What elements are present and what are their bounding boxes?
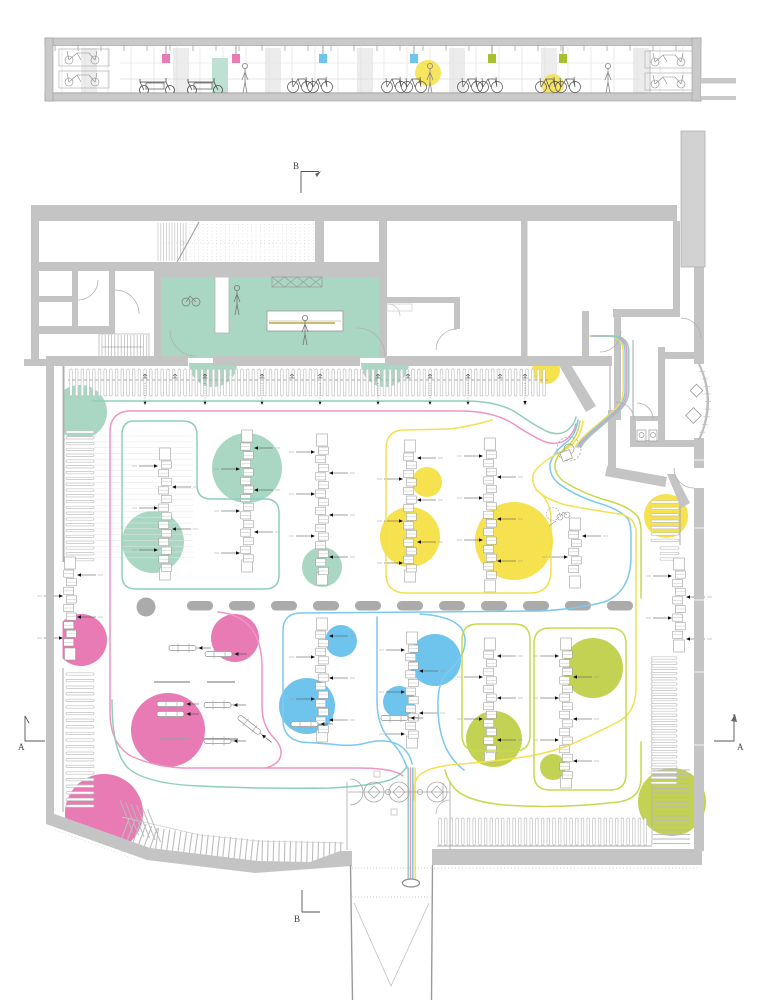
svg-text:A: A xyxy=(18,742,25,752)
svg-text:B: B xyxy=(294,914,300,924)
svg-text:A: A xyxy=(737,742,744,752)
svg-text:B: B xyxy=(293,161,299,171)
